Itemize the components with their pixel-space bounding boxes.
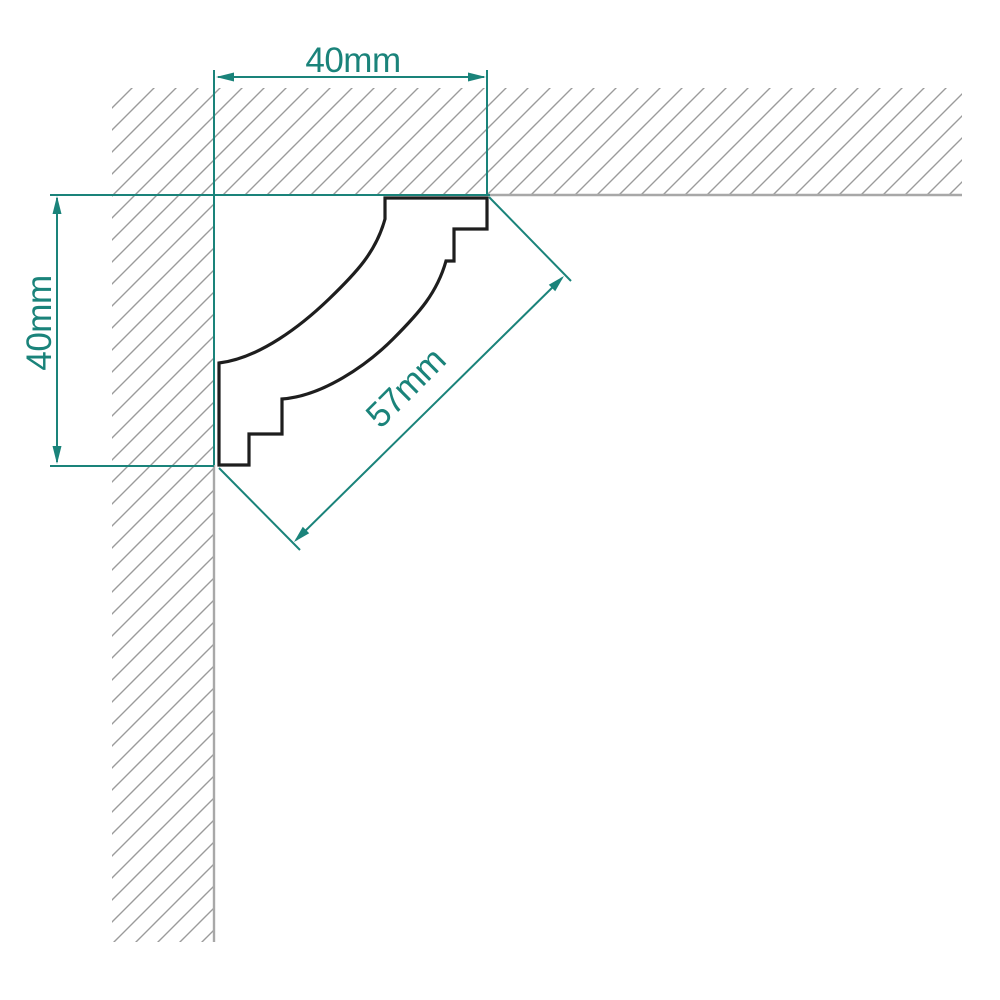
dimension-top-label: 40mm [305,41,400,80]
extension-line-upper [489,197,571,281]
dimension-left-label: 40mm [20,275,59,370]
arrowhead-bottom-icon [53,446,62,464]
molding-profile-outline [219,198,487,465]
cornice-corner-diagram: 40mm 40mm 57mm [0,0,1000,1000]
extension-line-lower [219,468,300,550]
arrowhead-right-icon [468,73,486,82]
arrowhead-left-icon [216,73,234,82]
wall-hatch-region [112,195,215,942]
arrowhead-top-icon [53,196,62,214]
drawing-canvas: 40mm 40mm 57mm [0,0,1000,1000]
ceiling-hatch-region [112,88,962,195]
